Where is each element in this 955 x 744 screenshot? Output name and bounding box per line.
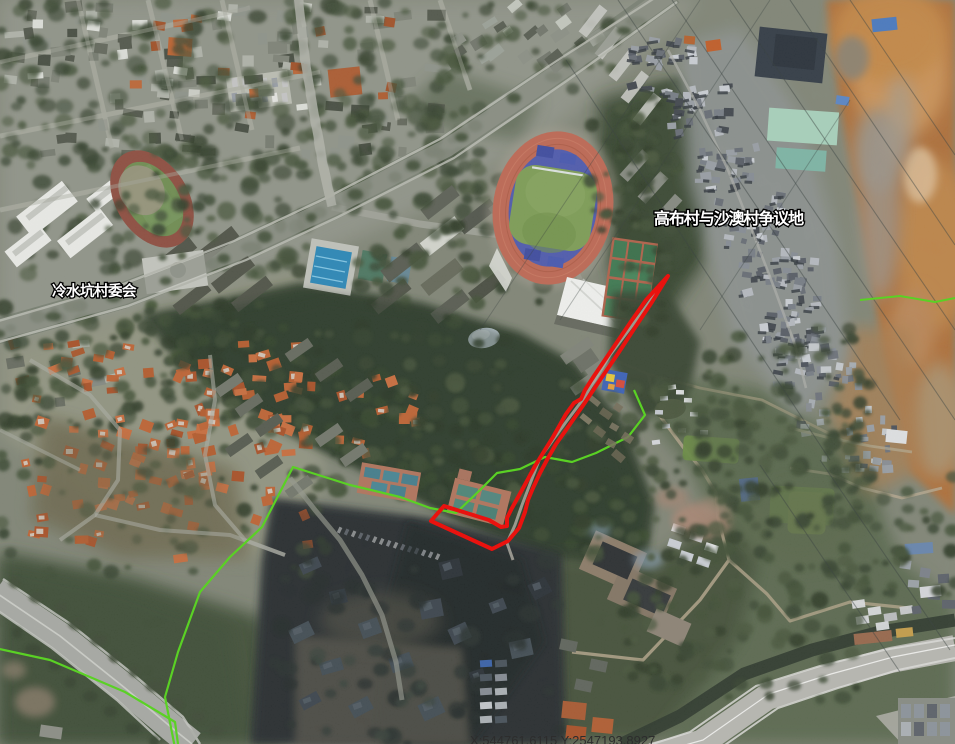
- svg-text:X:544761.6115 Y:2547193.8927: X:544761.6115 Y:2547193.8927: [470, 733, 655, 744]
- svg-text:高布村与沙澳村争议地: 高布村与沙澳村争议地: [654, 209, 804, 228]
- svg-text:冷水坑村委会: 冷水坑村委会: [52, 282, 137, 300]
